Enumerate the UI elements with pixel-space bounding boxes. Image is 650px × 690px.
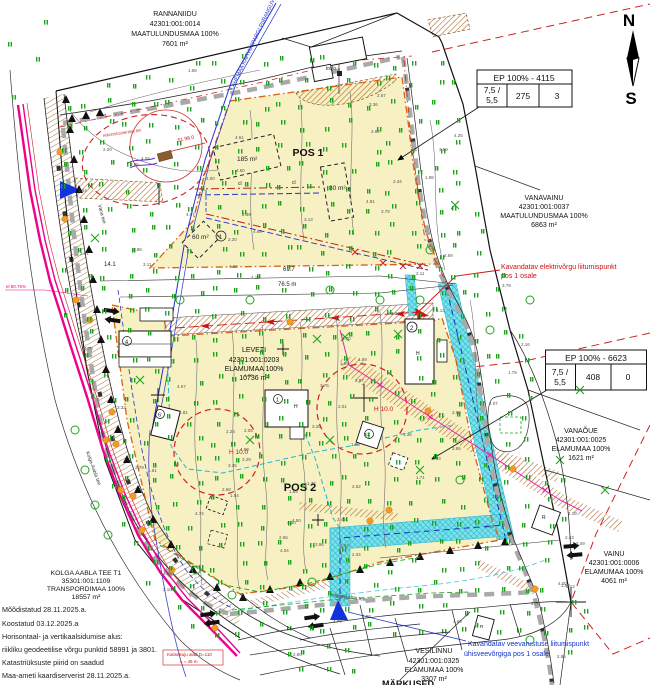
svg-text:4.07: 4.07 [489,401,498,406]
svg-text:1.77: 1.77 [307,481,316,486]
svg-text:3.33: 3.33 [432,456,441,461]
svg-text:ELAMUMAA 100%: ELAMUMAA 100% [585,569,644,576]
svg-text:MAATULUNDUSMAA 100%: MAATULUNDUSMAA 100% [131,31,218,38]
svg-text:4.00: 4.00 [206,176,215,181]
svg-text:ühisveevõrgiga pos 1 osale: ühisveevõrgiga pos 1 osale [464,651,549,658]
svg-text:1.65: 1.65 [340,361,349,366]
svg-text:POS 1: POS 1 [293,147,324,159]
svg-text:2.20: 2.20 [103,147,112,152]
svg-text:1.79: 1.79 [508,370,517,375]
svg-text:MAATULUNDUSMAA 100%: MAATULUNDUSMAA 100% [500,213,587,220]
svg-text:275: 275 [516,91,530,101]
svg-text:3.06: 3.06 [130,162,139,167]
svg-text:N: N [623,11,635,30]
svg-text:2.11: 2.11 [416,271,425,276]
svg-text:riikliku geodeetilise võrgu pu: riikliku geodeetilise võrgu punktid 5899… [2,645,157,654]
svg-text:42301:001:0037: 42301:001:0037 [519,204,570,211]
svg-text:42301:001:0014: 42301:001:0014 [150,21,201,28]
svg-text:42301:001:0006: 42301:001:0006 [589,560,640,567]
svg-text:18557 m²: 18557 m² [72,594,101,601]
svg-text:3.04: 3.04 [340,543,349,548]
svg-text:2.49: 2.49 [576,541,585,546]
svg-text:2.88: 2.88 [133,247,142,252]
svg-text:2.10: 2.10 [163,587,172,592]
svg-text:4.04: 4.04 [280,548,289,553]
svg-text:2.43: 2.43 [565,535,574,540]
svg-text:0: 0 [626,372,631,382]
svg-text:3: 3 [555,91,560,101]
svg-text:MÄRKUSED: MÄRKUSED [382,679,435,685]
svg-text:2.05: 2.05 [244,428,253,433]
svg-text:2.67: 2.67 [377,93,386,98]
svg-text:4061 m²: 4061 m² [601,578,627,585]
svg-text:6863 m²: 6863 m² [531,222,557,229]
svg-text:4: 4 [125,340,128,346]
svg-text:35301:001:1109: 35301:001:1109 [62,578,111,585]
svg-text:R: R [542,515,546,521]
svg-text:4.74: 4.74 [195,511,204,516]
svg-text:EP 100% - 4115: EP 100% - 4115 [493,73,554,83]
svg-text:cl: cl [238,181,242,187]
svg-text:2.20: 2.20 [228,237,237,242]
svg-text:H 10.0: H 10.0 [374,406,394,413]
svg-text:42301:001:0203: 42301:001:0203 [229,357,280,364]
svg-text:3.96: 3.96 [315,542,324,547]
svg-text:1.58: 1.58 [188,68,197,73]
svg-text:4.07: 4.07 [186,212,195,217]
svg-text:3.76: 3.76 [320,383,329,388]
svg-text:VANAVAINU: VANAVAINU [525,195,564,202]
svg-text:5,5: 5,5 [486,95,498,105]
svg-text:1: 1 [276,398,279,404]
svg-text:H: H [294,404,298,410]
svg-text:1.90: 1.90 [244,373,253,378]
svg-text:Mõõdistatud 28.11.2025.a.: Mõõdistatud 28.11.2025.a. [2,605,87,614]
svg-text:3.32: 3.32 [117,405,126,410]
svg-text:trafo: trafo [326,66,336,72]
svg-text:4.25: 4.25 [454,133,463,138]
svg-text:Kavandatav veevarustuse liitum: Kavandatav veevarustuse liitumispunkt [468,641,589,648]
svg-text:60 m²: 60 m² [192,234,209,241]
svg-text:4.67: 4.67 [177,384,186,389]
svg-text:4.79: 4.79 [84,346,93,351]
svg-text:1.54: 1.54 [230,493,239,498]
svg-text:2.34: 2.34 [393,179,402,184]
svg-text:1.81: 1.81 [179,410,188,415]
svg-text:2.80: 2.80 [293,652,302,657]
svg-text:VAINU: VAINU [604,551,625,558]
svg-text:4.50: 4.50 [292,518,301,523]
svg-text:1.70: 1.70 [342,336,351,341]
svg-text:76.5 m: 76.5 m [278,282,296,288]
svg-text:2.78: 2.78 [531,601,540,606]
svg-text:2.79: 2.79 [135,465,144,470]
svg-text:KOLGA AABLA TEE T1: KOLGA AABLA TEE T1 [51,570,122,577]
svg-text:4.81: 4.81 [366,199,375,204]
svg-text:2.45: 2.45 [337,517,346,522]
svg-text:4.04: 4.04 [141,156,150,161]
svg-text:1.61: 1.61 [148,468,157,473]
svg-text:1.84: 1.84 [78,188,87,193]
svg-text:3.97: 3.97 [355,378,364,383]
svg-text:EP 100% - 6623: EP 100% - 6623 [565,353,627,363]
svg-text:TRANSPORDIMAA 100%: TRANSPORDIMAA 100% [47,586,125,593]
svg-text:408: 408 [586,372,600,382]
svg-text:2.34: 2.34 [352,552,361,557]
svg-text:3.89: 3.89 [336,594,345,599]
svg-text:4.60: 4.60 [236,168,245,173]
svg-text:4.36: 4.36 [403,432,412,437]
svg-text:Kavandatav elektrivõrgu liitum: Kavandatav elektrivõrgu liitumispunkt [501,264,617,271]
svg-text:1.71: 1.71 [416,475,425,480]
svg-text:4.12: 4.12 [251,275,260,280]
svg-text:4.55: 4.55 [163,571,172,576]
svg-text:1.84: 1.84 [289,489,298,494]
svg-text:1.53: 1.53 [561,583,570,588]
svg-text:RANNANIIDU: RANNANIIDU [153,11,197,18]
svg-text:2.69: 2.69 [444,253,453,258]
svg-text:S: S [625,89,636,108]
svg-text:3.11: 3.11 [143,262,152,267]
svg-text:Maa-ameti kaardiserverist 28.1: Maa-ameti kaardiserverist 28.11.2025.a. [2,671,130,680]
svg-text:L = 46 m: L = 46 m [180,659,198,664]
svg-text:4.69: 4.69 [358,357,367,362]
svg-text:1.68: 1.68 [351,442,360,447]
svg-text:Horisontaal- ja vertikaalsidum: Horisontaal- ja vertikaalsidumise alus: [2,632,123,641]
svg-text:3.36: 3.36 [369,102,378,107]
svg-text:14.1: 14.1 [104,262,116,268]
svg-text:4.59: 4.59 [240,447,249,452]
svg-text:Kaitsekuju alad D=110: Kaitsekuju alad D=110 [167,652,212,657]
svg-text:ELAMUMAA 100%: ELAMUMAA 100% [405,667,464,674]
svg-text:Katastriüksuste piirid on saad: Katastriüksuste piirid on saadud [2,658,104,667]
svg-text:4.69: 4.69 [253,229,262,234]
svg-text:3.37: 3.37 [391,311,400,316]
svg-text:cl: cl [292,180,296,186]
svg-text:2.01: 2.01 [338,404,347,409]
svg-text:7,5 /: 7,5 / [552,367,569,377]
svg-text:3.84: 3.84 [492,494,501,499]
svg-text:2.18: 2.18 [568,511,577,516]
svg-text:2.85: 2.85 [557,654,566,659]
svg-text:ELAMUMAA 100%: ELAMUMAA 100% [225,366,284,373]
svg-text:Koostatud 03.12.2025.a: Koostatud 03.12.2025.a [2,619,78,628]
svg-text:el 80.76%: el 80.76% [6,284,26,289]
svg-text:2.68: 2.68 [222,487,231,492]
svg-text:3.78: 3.78 [381,209,390,214]
svg-text:5,5: 5,5 [554,377,566,387]
svg-text:2.39: 2.39 [242,212,251,217]
svg-text:4.61: 4.61 [235,135,244,140]
svg-text:7601 m²: 7601 m² [162,41,188,48]
svg-text:42301:001:0025: 42301:001:0025 [556,437,607,444]
svg-text:3.46: 3.46 [485,524,494,529]
svg-text:2.08: 2.08 [452,410,461,415]
svg-text:4.32: 4.32 [229,264,238,269]
svg-text:80 m²: 80 m² [329,185,346,192]
svg-text:185 m²: 185 m² [237,156,258,163]
svg-text:2.52: 2.52 [352,484,361,489]
svg-text:7,5 /: 7,5 / [484,85,501,95]
svg-text:6: 6 [158,413,161,419]
svg-text:4.13: 4.13 [436,308,445,313]
svg-text:1621 m²: 1621 m² [568,455,594,462]
svg-text:3.79: 3.79 [502,283,511,288]
svg-text:2.01: 2.01 [80,251,89,256]
svg-text:3.29: 3.29 [242,457,251,462]
svg-text:VANAÕUE: VANAÕUE [564,426,598,435]
svg-text:1.98: 1.98 [425,175,434,180]
svg-text:3.35: 3.35 [228,463,237,468]
svg-text:4.84: 4.84 [371,129,380,134]
svg-text:2.16: 2.16 [521,342,530,347]
svg-text:2.25: 2.25 [226,429,235,434]
svg-text:2.65: 2.65 [279,535,288,540]
svg-text:3.59: 3.59 [439,147,448,152]
svg-text:ELAMUMAA 100%: ELAMUMAA 100% [552,446,611,453]
svg-text:3.13: 3.13 [304,217,313,222]
svg-text:3.86: 3.86 [452,446,461,451]
svg-text:pos 1 osale: pos 1 osale [501,273,537,280]
svg-text:3.25: 3.25 [312,424,321,429]
